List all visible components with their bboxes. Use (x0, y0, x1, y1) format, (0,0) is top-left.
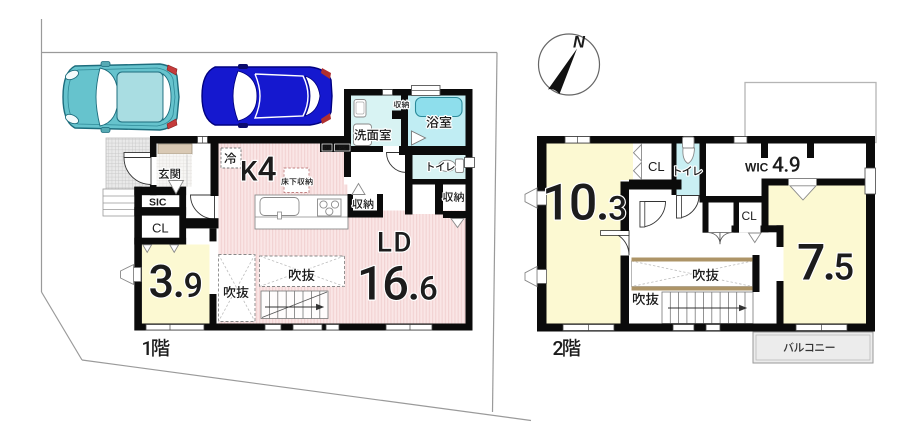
svg-text:CL: CL (648, 159, 665, 174)
svg-text:PS: PS (324, 146, 332, 152)
svg-text:CL: CL (742, 209, 758, 223)
svg-text:N: N (573, 34, 586, 52)
svg-text:WIC: WIC (745, 161, 769, 175)
svg-text:CL: CL (152, 221, 169, 236)
svg-text:PS: PS (339, 146, 347, 152)
svg-text:SIC: SIC (149, 197, 167, 209)
